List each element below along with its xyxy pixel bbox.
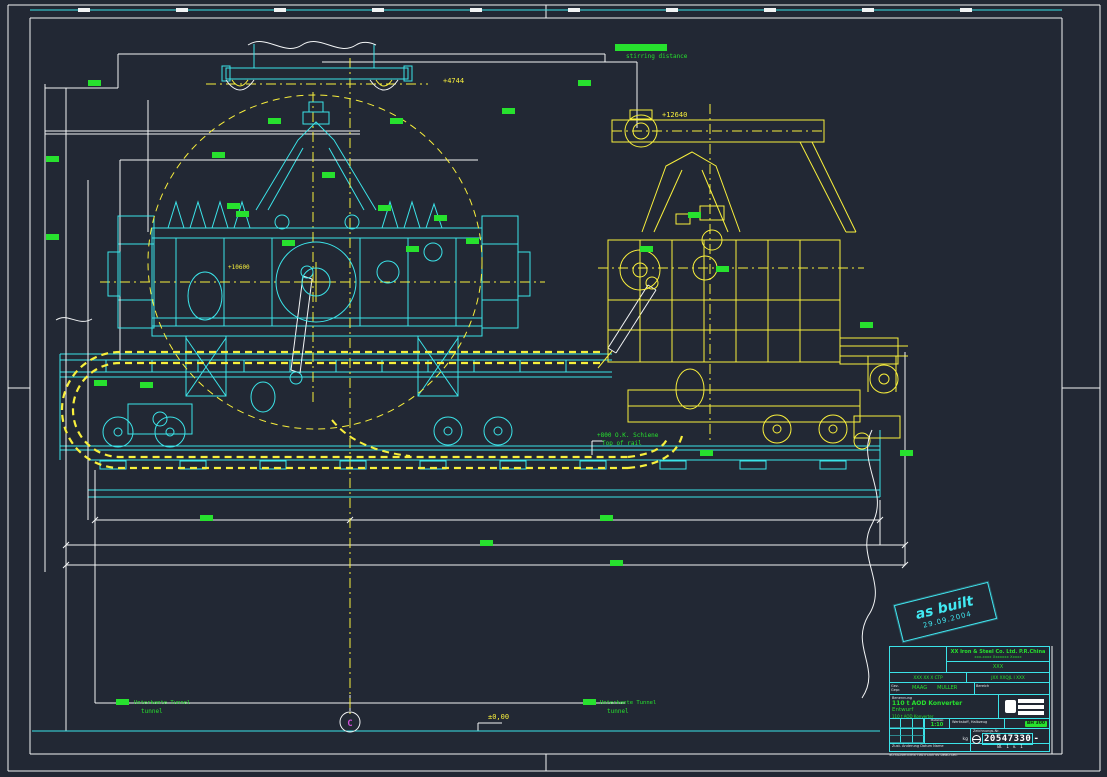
dimension-value-chip xyxy=(322,172,335,178)
cad-rect xyxy=(854,416,900,438)
cad-circle xyxy=(275,215,289,229)
cad-rect xyxy=(226,68,408,79)
cad-circle xyxy=(166,428,174,436)
dimension-value-chip xyxy=(212,152,225,158)
annotation-text: +800 O.K. Schiene xyxy=(597,432,659,439)
logo-mark-icon xyxy=(1005,700,1016,713)
names-row: Gez. Gepr. MAAG MULLER Bereich xyxy=(890,683,1049,695)
material-label: Werkstoff, Halbzeug xyxy=(950,719,1004,728)
title-block-company-row: XX Iron & Steel Co. Ltd. P.R.China xxx-x… xyxy=(890,647,1049,673)
annotation-text: ±0,00 xyxy=(488,713,509,721)
annotation-text: Unterkante Tunnel xyxy=(134,700,190,706)
cad-rect xyxy=(568,8,580,12)
cad-rect xyxy=(960,8,972,12)
cad-circle xyxy=(444,427,452,435)
dimension-value-chip xyxy=(640,246,653,252)
cad-path xyxy=(862,430,877,698)
dimension-value-chip xyxy=(406,246,419,252)
cad-path xyxy=(62,352,628,468)
cad-line xyxy=(800,142,846,232)
checked-by: MULLER xyxy=(937,683,957,694)
annotation-text: +10600 xyxy=(228,264,250,271)
cad-circle xyxy=(773,425,781,433)
cad-line xyxy=(654,170,682,232)
dimension-value-chip xyxy=(900,450,913,456)
cad-circle xyxy=(153,412,167,426)
dimension-value-chip xyxy=(688,212,701,218)
title-row: Benennung 110 t AOD Konverter Entwurf 11… xyxy=(890,695,1049,719)
cad-path xyxy=(642,152,740,232)
cad-line xyxy=(812,142,856,232)
cad-rect xyxy=(862,8,874,12)
of-label: v. xyxy=(1013,744,1016,751)
cad-ellipse xyxy=(188,272,222,320)
cad-path xyxy=(256,122,376,210)
dimension-value-chip xyxy=(390,118,403,124)
revision-grid-2 xyxy=(890,729,925,743)
cad-rect xyxy=(470,8,482,12)
weight-unit: kg xyxy=(963,737,968,742)
annotation-text: stirring distance xyxy=(626,53,688,60)
cad-line xyxy=(702,170,728,232)
cad-rect xyxy=(372,8,384,12)
order-left: XXX XX X CTP xyxy=(890,673,966,682)
drawing-number-suffix: - xyxy=(1034,734,1038,744)
cad-circle xyxy=(434,417,462,445)
scale-value: 1:10 xyxy=(925,722,949,728)
cad-ellipse xyxy=(676,369,704,409)
cad-rect xyxy=(309,102,323,112)
cad-rect xyxy=(518,252,530,296)
cad-circle xyxy=(345,215,359,229)
cad-circle xyxy=(870,365,898,393)
cad-circle xyxy=(424,243,442,261)
projection-symbol-icon xyxy=(972,735,981,744)
cad-circle xyxy=(819,415,847,443)
dimension-value-chip xyxy=(282,240,295,246)
cad-ellipse xyxy=(251,382,275,412)
company-logo xyxy=(998,695,1049,718)
company-subline: xxx-xxxx Xxxxxxx Xxxxx xyxy=(947,655,1049,660)
cad-rect xyxy=(78,8,90,12)
dimension-value-chip xyxy=(716,266,729,272)
dept-label: Bereich xyxy=(976,684,1048,688)
cad-circle xyxy=(301,266,313,278)
annotation-text: +12640 xyxy=(662,111,687,119)
cad-circle xyxy=(879,374,889,384)
cad-rect xyxy=(176,8,188,12)
cad-path xyxy=(232,80,248,86)
annotation-text: +4744 xyxy=(443,77,464,85)
revision-grid xyxy=(890,719,925,728)
annotation-text: Unterkante Tunnel xyxy=(600,700,656,706)
order-right: JXX XXQJL I XXX xyxy=(966,673,1049,682)
cad-drawing-sheet: stirring distance+800 O.K. SchieneTop of… xyxy=(0,0,1107,777)
dimension-value-chip xyxy=(434,215,447,221)
cad-rect xyxy=(764,8,776,12)
cad-rect xyxy=(820,461,846,469)
cad-rect xyxy=(128,404,192,434)
dimension-value-chip xyxy=(88,80,101,86)
cad-rect xyxy=(666,8,678,12)
cad-circle xyxy=(290,372,302,384)
drawing-subtitle: Entwurf xyxy=(892,707,996,714)
annotation-text: tunnel xyxy=(607,708,629,715)
dimension-value-chip xyxy=(615,44,667,51)
cad-rect xyxy=(608,240,840,362)
annotation-text: Top of rail xyxy=(602,440,642,447)
annotation-text: C xyxy=(347,719,352,729)
cad-line xyxy=(608,285,648,348)
sheet-row: Zust. Änderung Datum Name Bl. 1 v. 1 xyxy=(890,744,1049,751)
cad-rect xyxy=(840,338,898,364)
dimension-value-chip xyxy=(578,80,591,86)
project-code: XXX xyxy=(947,661,1049,672)
title-block-empty-cell xyxy=(890,647,947,672)
sheet-no: 1 xyxy=(1006,744,1009,751)
dimension-value-chip xyxy=(268,118,281,124)
dimension-value-chip xyxy=(860,322,873,328)
cad-path xyxy=(56,318,92,322)
cad-path xyxy=(376,80,392,86)
cad-circle xyxy=(155,417,185,447)
dimension-value-chip xyxy=(502,108,515,114)
cad-line xyxy=(616,290,656,353)
dimension-value-chip xyxy=(583,699,596,705)
sheet-label: Bl. xyxy=(997,744,1002,751)
checked-label: Gepr. xyxy=(891,688,911,692)
dimension-value-chip xyxy=(46,234,59,240)
dimension-value-chip xyxy=(116,699,129,705)
drawing-title: 110 t AOD Konverter xyxy=(892,700,996,707)
cad-path xyxy=(248,42,376,49)
dimension-value-chip xyxy=(480,540,493,546)
cad-line xyxy=(329,148,364,210)
cad-line xyxy=(608,348,616,353)
cad-rect xyxy=(274,8,286,12)
protection-note: Schutzvermerk nach DIN 34 beachten xyxy=(889,753,1050,757)
cad-circle xyxy=(829,425,837,433)
dimension-value-chip xyxy=(600,515,613,521)
cad-path xyxy=(370,80,398,90)
dimension-value-chip xyxy=(46,156,59,162)
dimension-value-chip xyxy=(610,560,623,566)
dimension-value-chip xyxy=(94,380,107,386)
scale-row: Maßstab 1:10 Werkstoff, Halbzeug BH 300 xyxy=(890,719,1049,729)
cad-circle xyxy=(494,427,502,435)
of-no: 1 xyxy=(1020,744,1023,751)
cad-rect xyxy=(676,214,690,224)
dimension-value-chip xyxy=(227,203,240,209)
dimension-value-chip xyxy=(466,238,479,244)
dimension-value-chip xyxy=(378,205,391,211)
drawn-by: MAAG xyxy=(912,683,927,694)
cad-circle xyxy=(763,415,791,443)
cad-rect xyxy=(482,216,518,328)
cad-circle xyxy=(484,417,512,445)
cad-line xyxy=(268,148,303,210)
cad-circle xyxy=(114,428,122,436)
cad-circle xyxy=(377,261,399,283)
dimension-value-chip xyxy=(200,515,213,521)
cad-rect xyxy=(740,461,766,469)
annotation-text: tunnel xyxy=(141,708,163,715)
order-row: XXX XX X CTP JXX XXQJL I XXX xyxy=(890,673,1049,683)
dimension-value-chip xyxy=(700,450,713,456)
number-row: kg Zeichnungs-Nr. 20547330 - xyxy=(890,729,1049,744)
cad-rect xyxy=(118,216,154,328)
dimension-value-chip xyxy=(236,211,249,217)
dimension-value-chip xyxy=(140,382,153,388)
cad-rect xyxy=(660,461,686,469)
standard-chip: BH 300 xyxy=(1025,721,1047,727)
title-block: XX Iron & Steel Co. Ltd. P.R.China xxx-x… xyxy=(889,646,1050,752)
cad-line xyxy=(291,276,303,370)
cad-path xyxy=(332,420,410,456)
revision-header: Zust. Änderung Datum Name xyxy=(890,744,970,751)
